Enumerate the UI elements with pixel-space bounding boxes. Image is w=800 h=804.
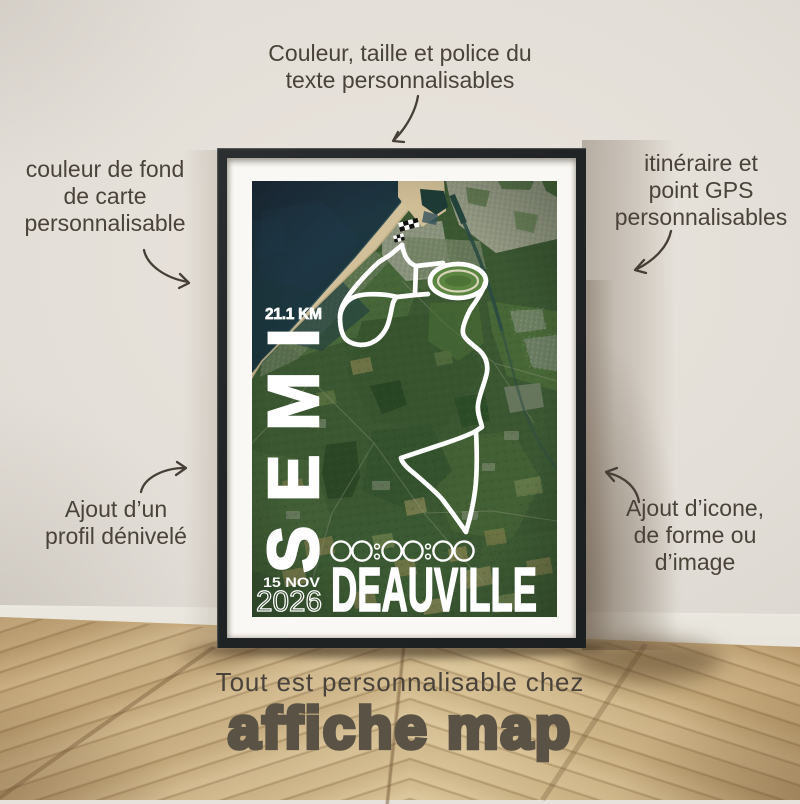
svg-text:2026: 2026: [256, 586, 322, 617]
svg-text:DEAUVILLE: DEAUVILLE: [331, 556, 537, 617]
svg-text:21.1 KM: 21.1 KM: [265, 306, 322, 323]
